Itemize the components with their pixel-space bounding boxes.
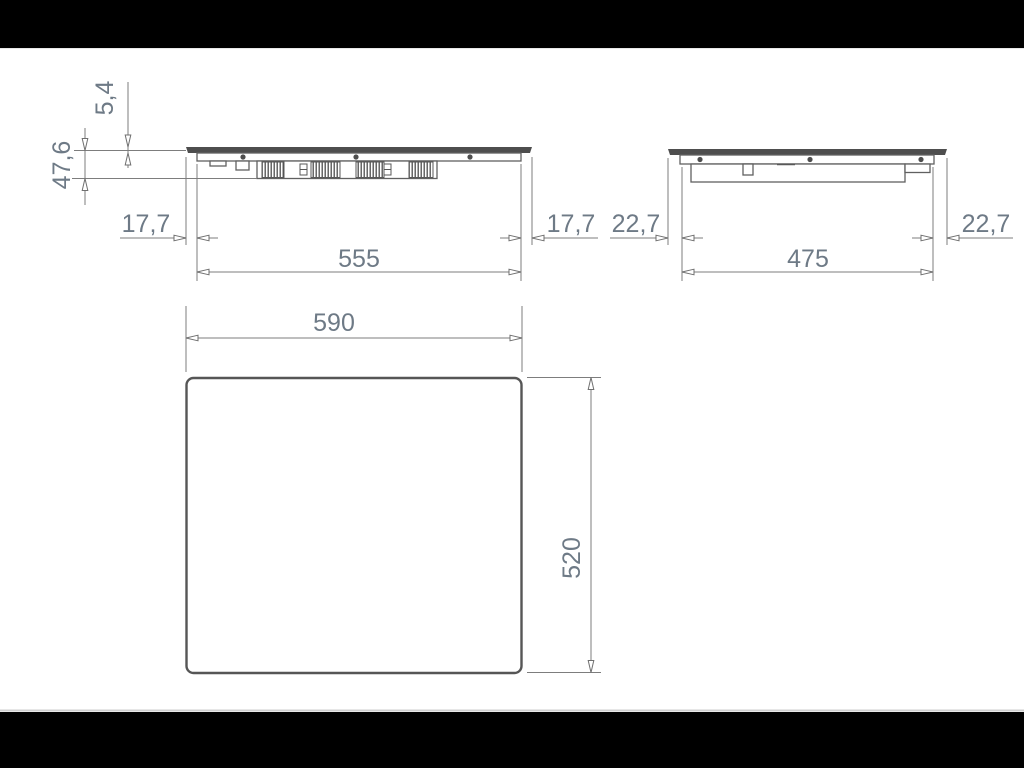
screw-icon (807, 157, 812, 162)
dim-label-side-right-overhang: 22,7 (962, 210, 1011, 238)
heatsink-fins (409, 162, 433, 178)
dim-label-front-body-width: 555 (338, 245, 380, 273)
front-glass-panel (186, 147, 532, 153)
side-view (668, 149, 947, 182)
dim-label-top-overall-depth: 520 (558, 537, 586, 579)
side-right-bracket (905, 164, 930, 173)
side-glass-panel (668, 149, 947, 155)
screenshot-stage: 5,4 47,6 17,7 (0, 0, 1024, 768)
top-view (187, 378, 522, 673)
dim-label-glass-thickness: 5,4 (91, 81, 119, 116)
front-left-bracket (210, 161, 226, 166)
heatsink-fins (356, 162, 384, 178)
dim-label-front-right-overhang: 17,7 (547, 210, 596, 238)
side-lower-housing (691, 164, 905, 182)
heatsink-fins (262, 162, 284, 178)
dim-label-height: 47,6 (48, 141, 76, 190)
front-screw-mount (236, 161, 249, 170)
side-tab-detail (743, 164, 753, 175)
dimension-drawing: 5,4 47,6 17,7 (0, 0, 1024, 768)
heatsink-fins (311, 162, 340, 178)
top-view-outline (187, 378, 522, 673)
dim-label-top-overall-width: 590 (313, 309, 355, 337)
screw-icon (240, 154, 245, 159)
connector-detail (384, 164, 391, 175)
dim-label-side-body-depth: 475 (787, 245, 829, 273)
dim-label-front-left-overhang: 17,7 (122, 210, 171, 238)
screw-icon (697, 157, 702, 162)
connector-detail (300, 164, 307, 175)
side-frame-rail (680, 155, 934, 164)
screw-icon (918, 157, 923, 162)
screw-icon (353, 154, 358, 159)
dim-label-side-left-overhang: 22,7 (612, 210, 661, 238)
screw-icon (467, 154, 472, 159)
